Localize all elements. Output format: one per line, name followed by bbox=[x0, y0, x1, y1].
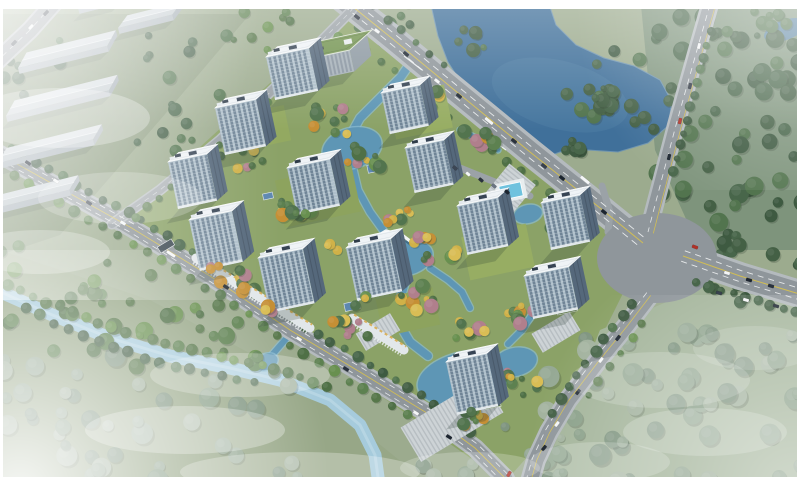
aerial-render-svg: Aerial bird's-eye architectural renderin… bbox=[0, 0, 800, 485]
rendering-canvas: Aerial bird's-eye architectural renderin… bbox=[0, 0, 800, 485]
